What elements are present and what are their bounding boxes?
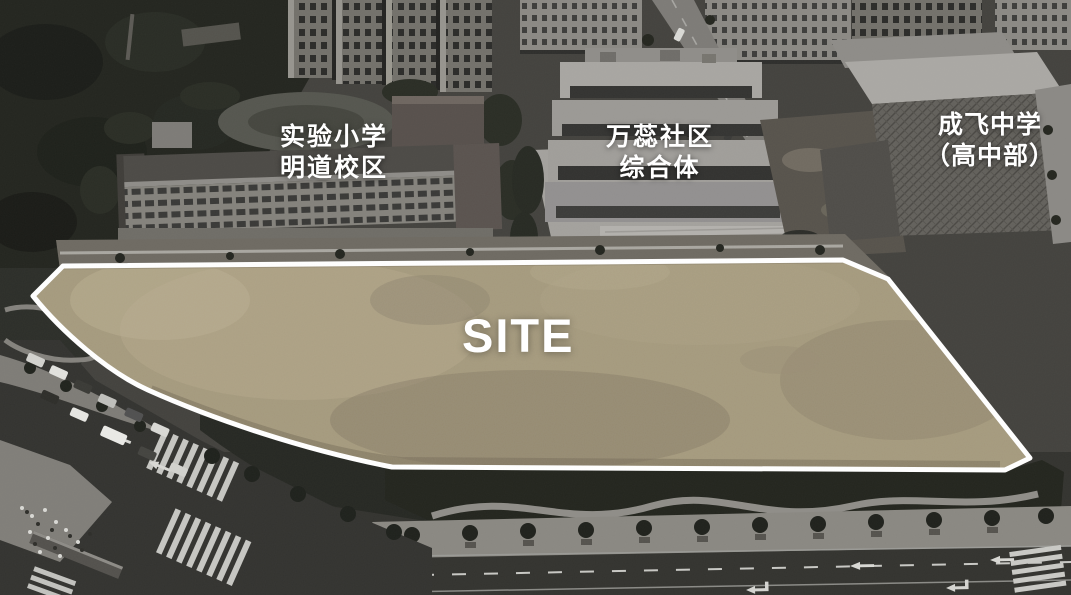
high-school-label-line1: 成飞中学 [910, 110, 1070, 141]
high-school-label: 成飞中学 （高中部） [910, 110, 1070, 172]
primary-school-label: 实验小学 明道校区 [276, 122, 392, 184]
aerial-photo-layer [0, 0, 1071, 595]
primary-school-label-line1: 实验小学 [276, 122, 392, 153]
aerial-site-photo: 实验小学 明道校区 万蕊社区 综合体 成飞中学 （高中部） SITE [0, 0, 1071, 595]
community-complex-label-line1: 万蕊社区 [598, 122, 722, 153]
site-label: SITE [462, 308, 574, 363]
primary-school-label-line2: 明道校区 [276, 153, 392, 184]
community-complex-label-line2: 综合体 [598, 153, 722, 184]
community-complex-label: 万蕊社区 综合体 [598, 122, 722, 184]
high-school-label-line2: （高中部） [910, 141, 1070, 172]
photo-grain [0, 0, 1071, 595]
